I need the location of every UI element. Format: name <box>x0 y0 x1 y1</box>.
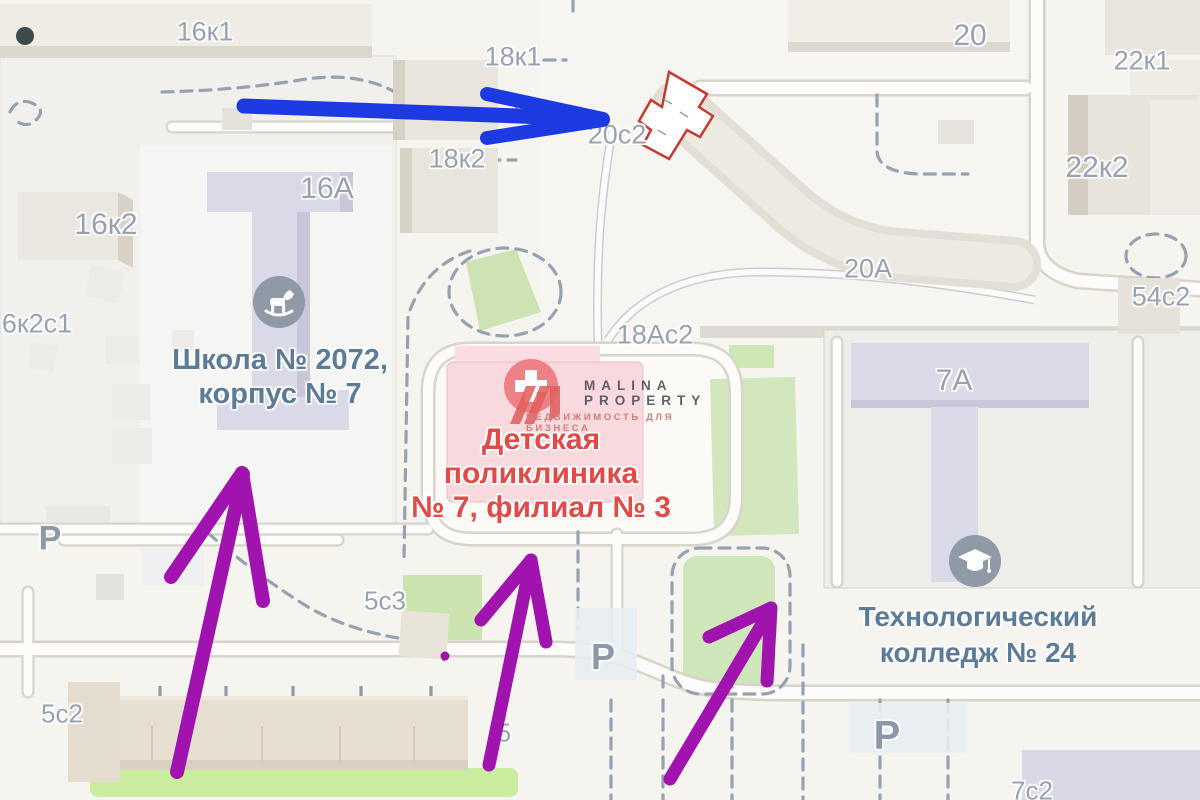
poi-label-school: Школа № 2072, корпус № 7 <box>172 343 388 411</box>
college-name-line2: колледж № 24 <box>859 635 1098 671</box>
building-label-22k1: 22к1 <box>1114 46 1171 77</box>
school-name-line1: Школа № 2072, <box>172 343 388 377</box>
building-label-5: 5 <box>497 718 511 749</box>
building-label-20: 20 <box>953 19 986 53</box>
building-label-18k2: 18к2 <box>429 144 486 175</box>
building-label-16a: 16А <box>300 172 353 206</box>
building-label-18as2: 18Ас2 <box>617 320 694 351</box>
parking-icon: P <box>591 636 615 678</box>
building-label-7s2: 7с2 <box>1011 776 1053 800</box>
map-canvas[interactable]: 16к1 18к1 20 22к1 18к2 20с2 22к2 16А 16к… <box>0 0 1200 800</box>
building-label-6k2s1: 6к2с1 <box>2 309 72 340</box>
watermark-brand-line2: PROPERTY <box>584 393 706 408</box>
building-label-5s2: 5с2 <box>41 699 83 730</box>
clinic-name-line3: № 7, филиал № 3 <box>411 491 671 525</box>
building-label-7a: 7А <box>936 364 973 398</box>
parking-icon: P <box>874 714 901 759</box>
malina-property-watermark: MALINA PROPERTY НЕДВИЖИМОСТЬ ДЛЯ БИЗНЕСА <box>500 370 720 426</box>
poi-label-clinic: Детская поликлиника № 7, филиал № 3 <box>411 423 671 525</box>
watermark-tagline: НЕДВИЖИМОСТЬ ДЛЯ БИЗНЕСА <box>526 412 720 434</box>
building-label-20a: 20А <box>844 254 892 285</box>
building-label-5s3: 5с3 <box>364 586 406 617</box>
clinic-name-line2: поликлиника <box>411 457 671 491</box>
building-label-54s2: 54с2 <box>1132 282 1191 313</box>
building-label-16k1: 16к1 <box>177 17 234 48</box>
school-name-line2: корпус № 7 <box>172 377 388 411</box>
building-label-16k2: 16к2 <box>74 208 137 242</box>
building-label-18k1: 18к1 <box>485 42 542 73</box>
watermark-brand-line1: MALINA <box>584 378 673 393</box>
building-label-20s2: 20с2 <box>588 120 647 151</box>
parking-icon: P <box>39 520 62 559</box>
college-name-line1: Технологический <box>859 599 1098 635</box>
poi-label-college: Технологический колледж № 24 <box>859 599 1098 671</box>
building-label-22k2: 22к2 <box>1065 151 1128 185</box>
